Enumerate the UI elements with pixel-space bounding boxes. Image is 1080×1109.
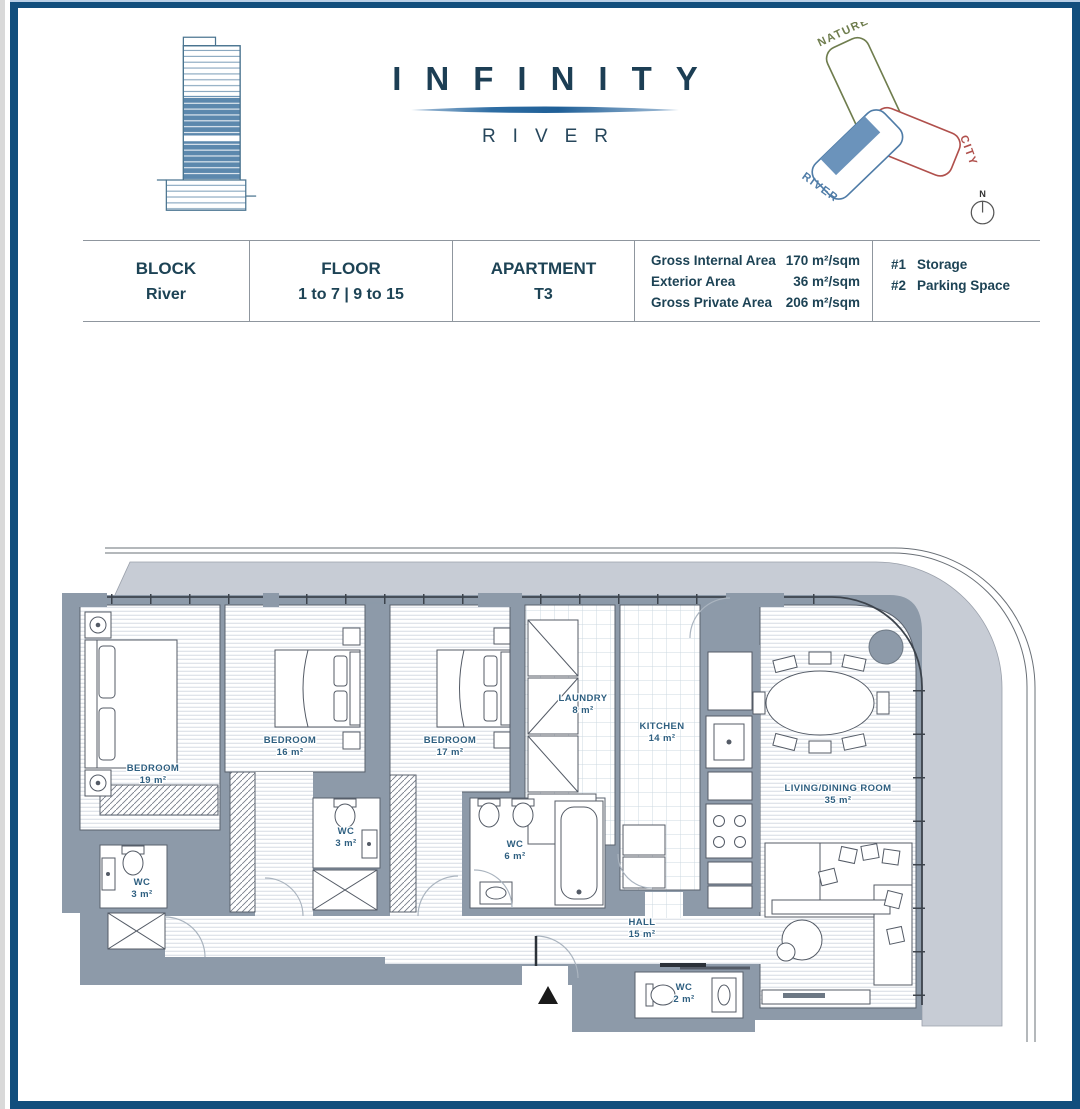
- label-wc2: WC: [676, 982, 693, 993]
- svg-text:35 m²: 35 m²: [825, 795, 852, 806]
- extra-num: #1: [891, 254, 917, 275]
- apartment-label: APARTMENT: [491, 259, 596, 279]
- site-wings: [807, 34, 964, 204]
- block-label: BLOCK: [136, 259, 196, 279]
- floor-value: 1 to 7 | 9 to 15: [298, 286, 404, 304]
- site-diagram: NATURE CITY RIVER N: [793, 22, 998, 232]
- area-value: 36 m²/sqm: [793, 271, 860, 292]
- brand-swoosh: [405, 104, 685, 116]
- structural-column: [869, 630, 903, 664]
- floor-plan: BEDROOM 19 m² BEDROOM 16 m² BEDROOM 17 m…: [50, 540, 1040, 1055]
- stove: [706, 804, 752, 858]
- area-value: 206 m²/sqm: [786, 292, 860, 313]
- extra-parking: #2 Parking Space: [891, 275, 1010, 296]
- floor-label: FLOOR: [321, 259, 381, 279]
- label-wc3-left: WC: [134, 877, 151, 888]
- label-wc3-mid: WC: [338, 826, 355, 837]
- svg-text:14 m²: 14 m²: [649, 733, 676, 744]
- svg-text:2 m²: 2 m²: [673, 994, 694, 1005]
- block-value: River: [146, 286, 186, 304]
- svg-text:15 m²: 15 m²: [629, 929, 656, 940]
- area-label: Gross Private Area: [651, 292, 772, 313]
- info-table: BLOCK River FLOOR 1 to 7 | 9 to 15 APART…: [83, 240, 1040, 322]
- label-wc6: WC: [507, 839, 524, 850]
- svg-text:16 m²: 16 m²: [277, 747, 304, 758]
- corridor: [165, 916, 385, 957]
- info-col-areas: Gross Internal Area 170 m²/sqm Exterior …: [635, 241, 873, 321]
- svg-text:17 m²: 17 m²: [437, 747, 464, 758]
- info-col-apartment: APARTMENT T3: [453, 241, 635, 321]
- entrance-opening: [522, 966, 568, 985]
- area-row-private: Gross Private Area 206 m²/sqm: [651, 292, 860, 313]
- svg-text:8 m²: 8 m²: [572, 705, 593, 716]
- site-label-city: CITY: [957, 134, 979, 168]
- extra-value: Storage: [917, 254, 967, 275]
- area-row-internal: Gross Internal Area 170 m²/sqm: [651, 250, 860, 271]
- label-bedroom19: BEDROOM: [127, 763, 179, 774]
- compass-n: N: [979, 189, 986, 199]
- wardrobe-bedroom16: [230, 772, 255, 912]
- wardrobe-bedroom19: [100, 785, 218, 815]
- svg-text:3 m²: 3 m²: [131, 889, 152, 900]
- label-living: LIVING/DINING ROOM: [785, 783, 892, 794]
- apartment-value: T3: [534, 286, 553, 304]
- entrance-arrow: [538, 986, 558, 1004]
- svg-text:3 m²: 3 m²: [335, 838, 356, 849]
- label-bedroom17: BEDROOM: [424, 735, 476, 746]
- info-col-floor: FLOOR 1 to 7 | 9 to 15: [250, 241, 453, 321]
- room-hall: [385, 916, 762, 964]
- label-bedroom16: BEDROOM: [264, 735, 316, 746]
- svg-text:19 m²: 19 m²: [140, 775, 167, 786]
- label-kitchen: KITCHEN: [639, 721, 684, 732]
- area-label: Gross Internal Area: [651, 250, 776, 271]
- compass-icon: N: [971, 189, 994, 224]
- info-col-block: BLOCK River: [83, 241, 250, 321]
- wardrobe-bedroom17: [390, 775, 416, 912]
- svg-text:6 m²: 6 m²: [504, 851, 525, 862]
- extra-num: #2: [891, 275, 917, 296]
- info-col-extras: #1 Storage #2 Parking Space: [873, 241, 1040, 321]
- area-label: Exterior Area: [651, 271, 735, 292]
- extra-value: Parking Space: [917, 275, 1010, 296]
- label-laundry: LAUNDRY: [559, 693, 608, 704]
- extra-storage: #1 Storage: [891, 254, 967, 275]
- page-top-accent: [10, 0, 1080, 2]
- label-hall: HALL: [629, 917, 656, 928]
- area-row-exterior: Exterior Area 36 m²/sqm: [651, 271, 860, 292]
- area-value: 170 m²/sqm: [786, 250, 860, 271]
- brochure-page: INFINITY RIVER NATURE CITY RIVER N: [10, 0, 1080, 1109]
